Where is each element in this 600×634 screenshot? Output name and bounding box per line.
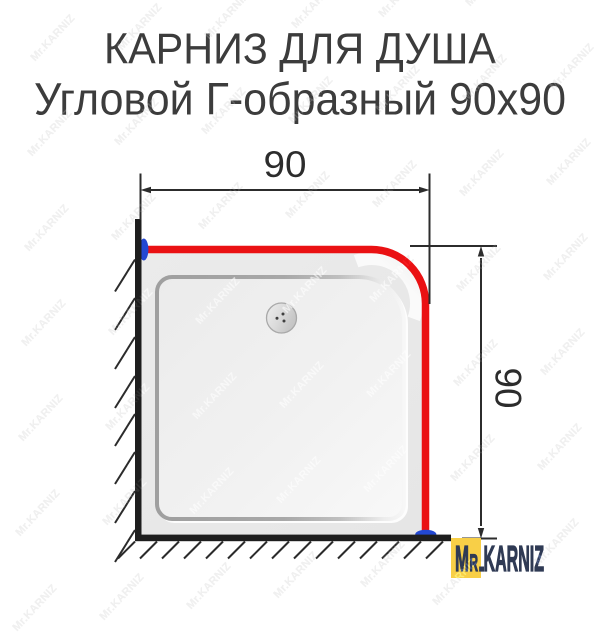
svg-text:90: 90 (264, 144, 307, 185)
svg-text:90: 90 (488, 368, 529, 409)
svg-text:КАРНИЗ ДЛЯ ДУША: КАРНИЗ ДЛЯ ДУША (104, 25, 497, 74)
